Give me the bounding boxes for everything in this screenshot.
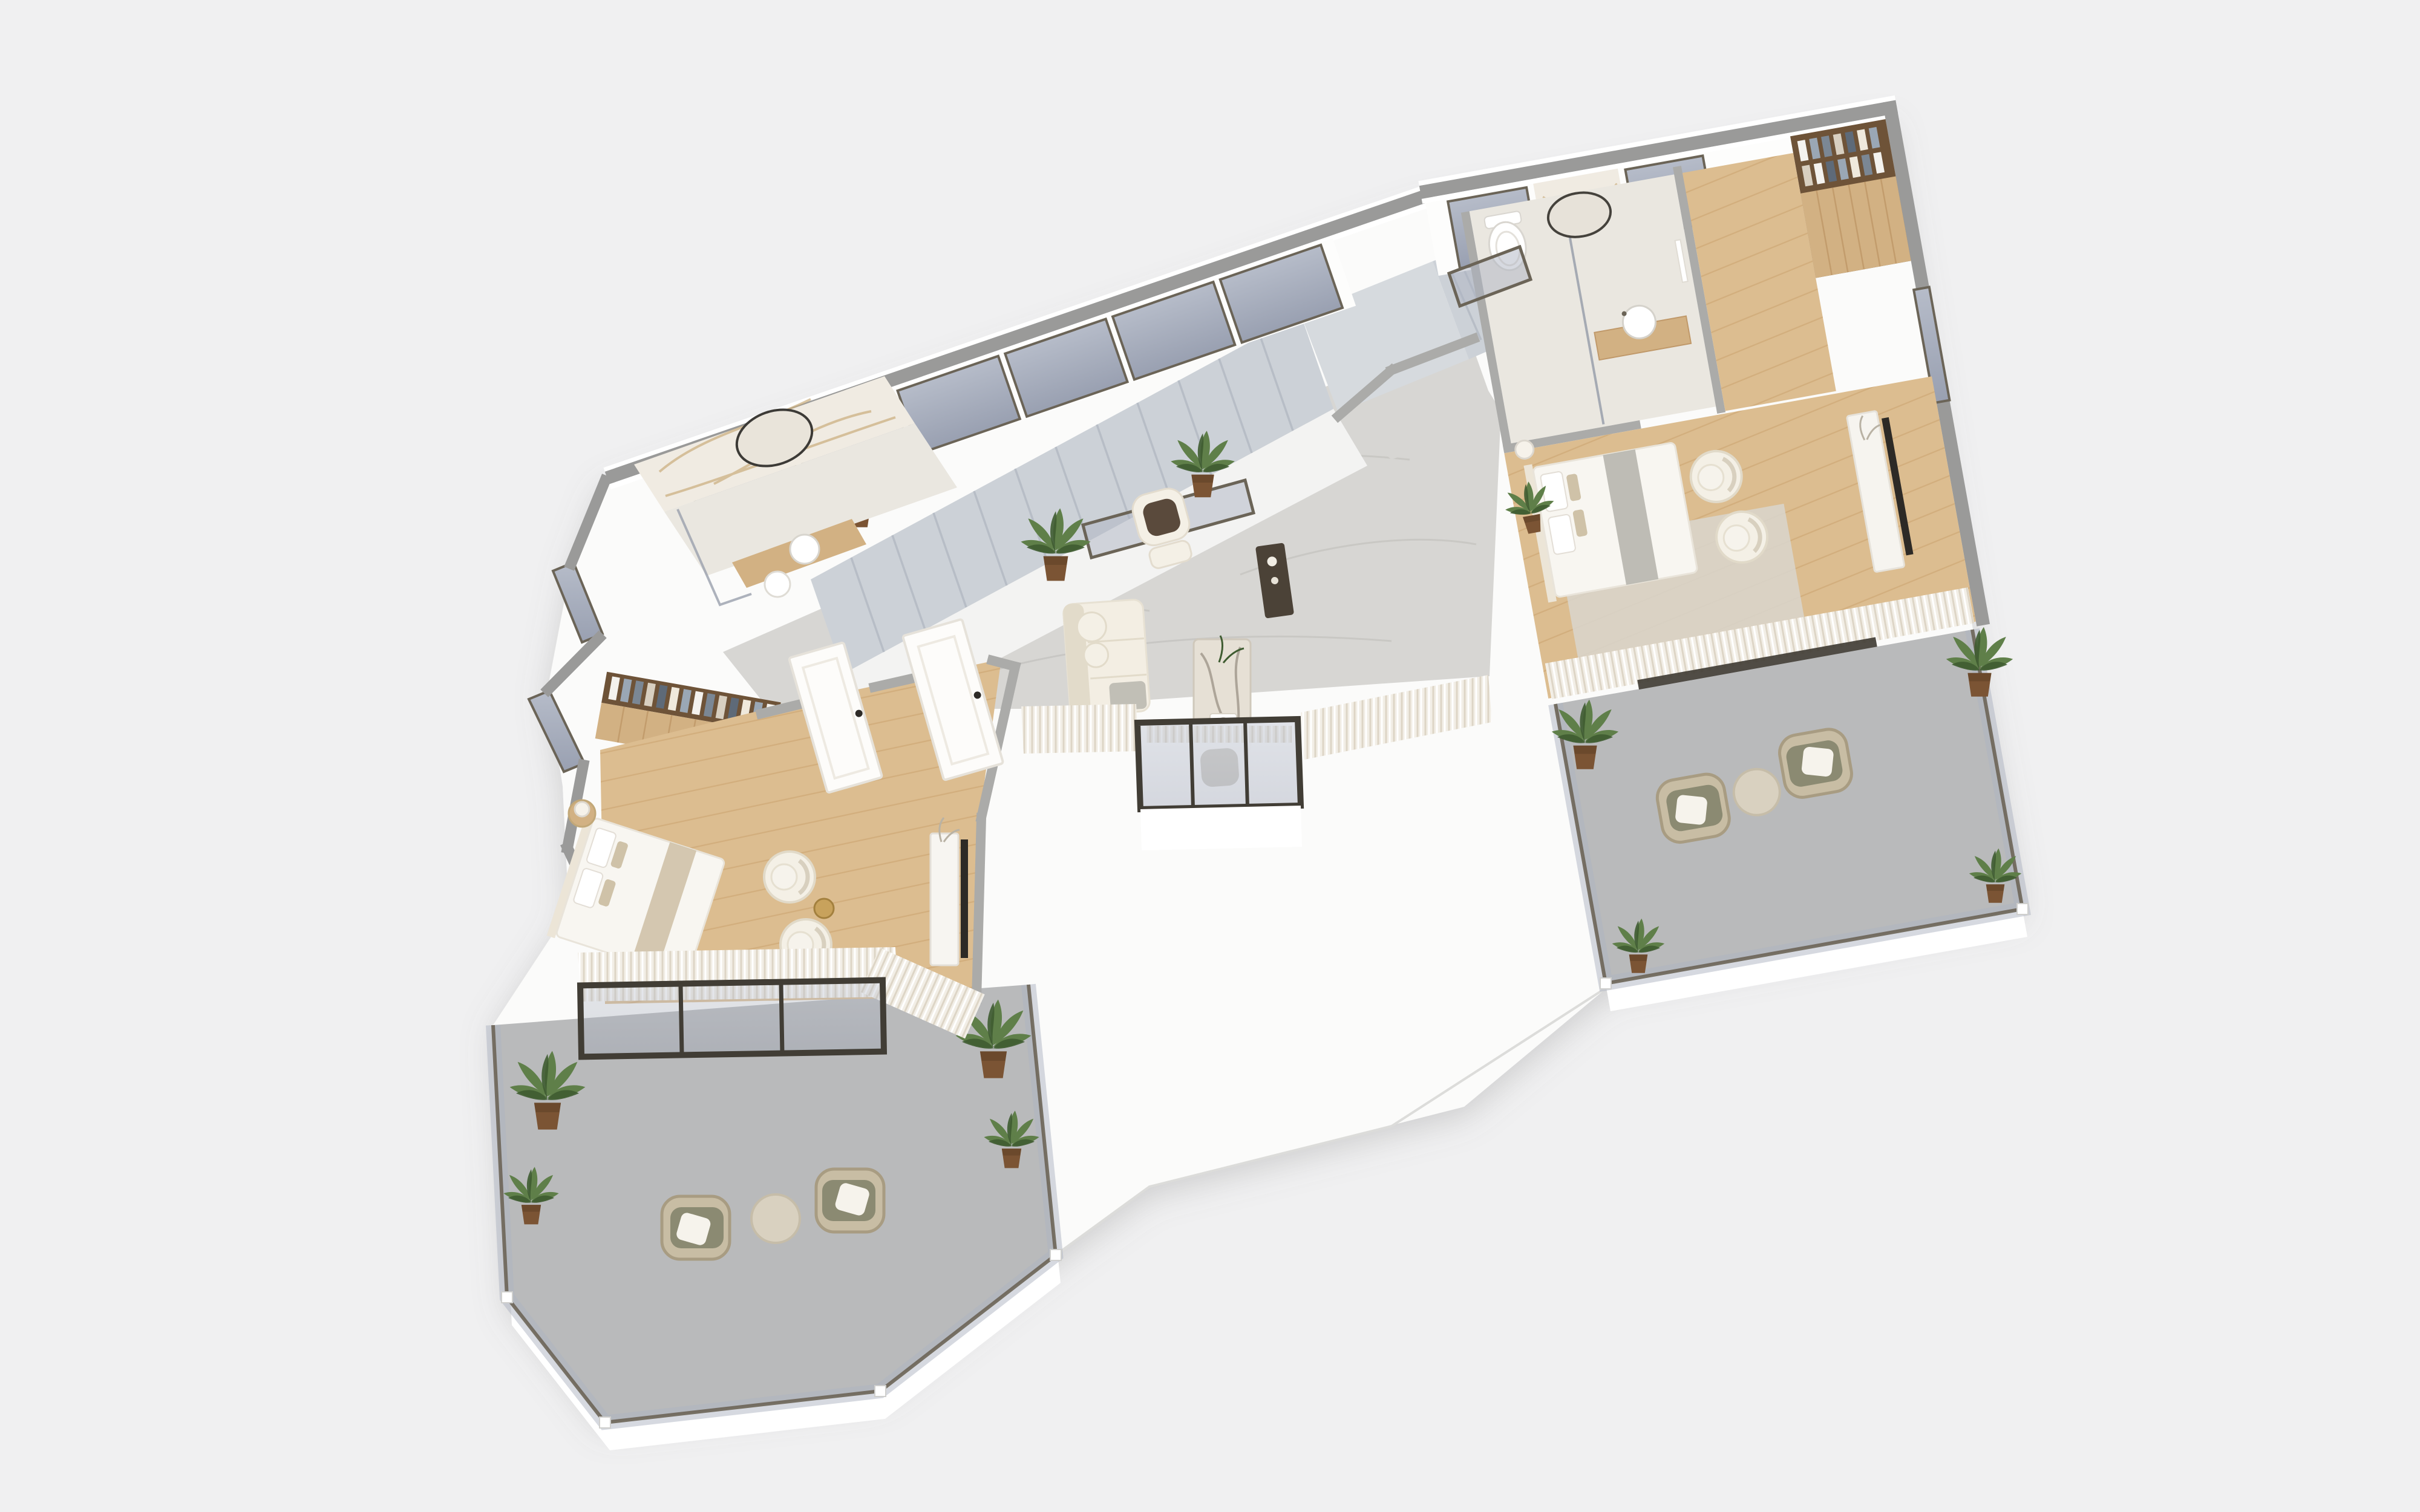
table-lamp — [575, 802, 589, 816]
bay-glass — [1137, 719, 1301, 809]
side-table — [751, 1194, 800, 1243]
tv-screen — [961, 839, 968, 958]
brass-side-table — [814, 899, 834, 918]
curtain-band — [1021, 704, 1139, 754]
bathroom2 — [1460, 166, 1726, 453]
bay-window — [1137, 719, 1302, 850]
master-tv-wall — [930, 818, 968, 965]
tv-console — [930, 833, 958, 965]
sofa — [1063, 599, 1151, 717]
basin — [790, 535, 819, 564]
render-canvas — [0, 0, 2420, 1512]
stool — [765, 572, 790, 597]
master-sliding-door — [580, 980, 884, 1057]
bay-sill — [1140, 806, 1302, 850]
apartment-floorplan-render — [0, 0, 2420, 1512]
